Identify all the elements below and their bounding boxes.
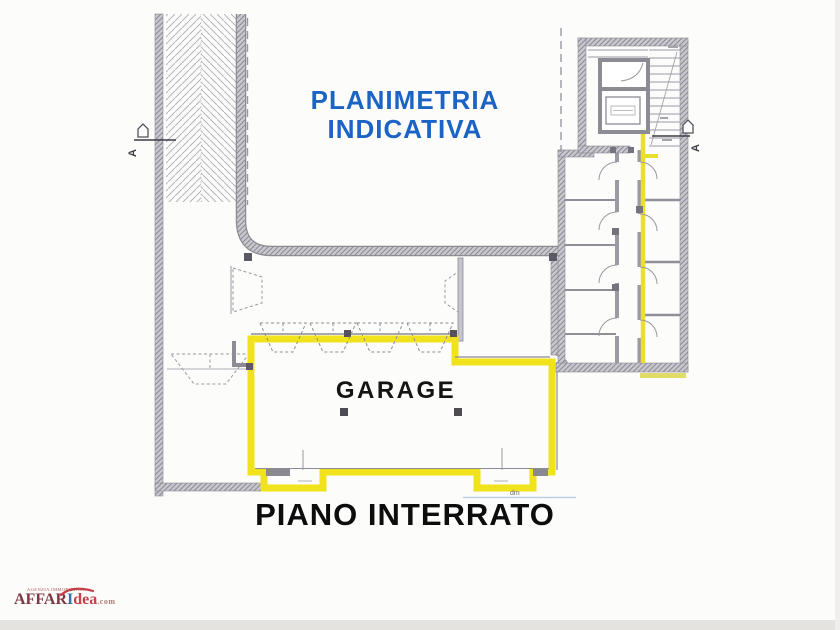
plan-title-line2: INDICATIVA (250, 115, 560, 144)
section-marker-right: A (652, 120, 702, 152)
stairwell (561, 28, 688, 153)
driveway-area (231, 253, 569, 371)
dim-mark: dm (510, 490, 520, 497)
ramp-hatch-left (166, 14, 201, 202)
garage-column (340, 408, 348, 416)
door-arcs (599, 162, 657, 337)
garage-room-label: GARAGE (296, 377, 496, 405)
ramp-bottom-wall (155, 483, 267, 491)
plan-title-line1: PLANIMETRIA (250, 86, 560, 115)
section-label-right: A (690, 144, 702, 152)
floor-plan-page: A A dm PLANIMETRIA INDICATIVA GARAGE PIA… (0, 0, 840, 630)
tiny-plan-notes (660, 47, 678, 140)
vent-funnel-left (233, 268, 262, 312)
garage-unit (234, 330, 557, 488)
ramp-hatch-right (201, 14, 236, 202)
section-arrow-icon (138, 124, 148, 137)
scan-edge-bottom (0, 620, 840, 630)
scan-edge-right (835, 0, 840, 630)
agency-logo: AGENZIA IMMOBILIARE AFFARIdea.com (14, 587, 134, 623)
plan-watermark-title: PLANIMETRIA INDICATIVA (250, 86, 560, 144)
garage-yellow-outline (251, 339, 552, 488)
floor-title: PIANO INTERRATO (180, 497, 630, 533)
logo-swoosh-icon (60, 584, 96, 597)
section-label-left: A (127, 149, 139, 157)
vent-funnel-right (445, 272, 458, 312)
logo-text-com: .com (97, 597, 115, 606)
garage-column (454, 408, 462, 416)
